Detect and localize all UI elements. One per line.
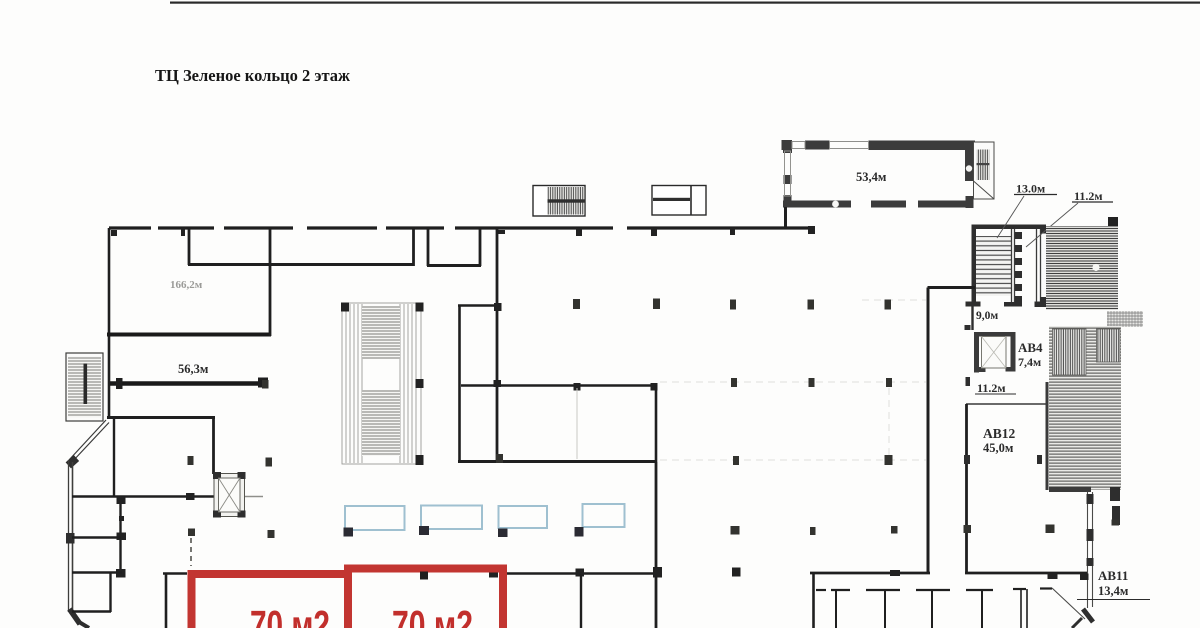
svg-text:11.2м: 11.2м [977,381,1006,395]
svg-text:70 м2: 70 м2 [392,602,473,628]
svg-text:11.2м: 11.2м [1074,189,1103,203]
svg-text:АВ4: АВ4 [1018,340,1043,355]
svg-text:45,0м: 45,0м [983,441,1014,455]
svg-text:13,4м: 13,4м [1098,584,1129,598]
svg-text:56,3м: 56,3м [178,362,209,376]
svg-text:166,2м: 166,2м [170,279,203,291]
svg-text:АВ12: АВ12 [983,426,1016,441]
svg-text:ТЦ Зеленое кольцо 2 этаж: ТЦ Зеленое кольцо 2 этаж [155,66,350,85]
svg-text:13.0м: 13.0м [1016,182,1045,196]
svg-text:7,4м: 7,4м [1018,355,1041,369]
svg-text:53,4м: 53,4м [856,170,887,184]
svg-text:АВ11: АВ11 [1098,568,1128,583]
svg-text:70 м2: 70 м2 [250,602,330,628]
svg-text:9,0м: 9,0м [976,310,998,322]
